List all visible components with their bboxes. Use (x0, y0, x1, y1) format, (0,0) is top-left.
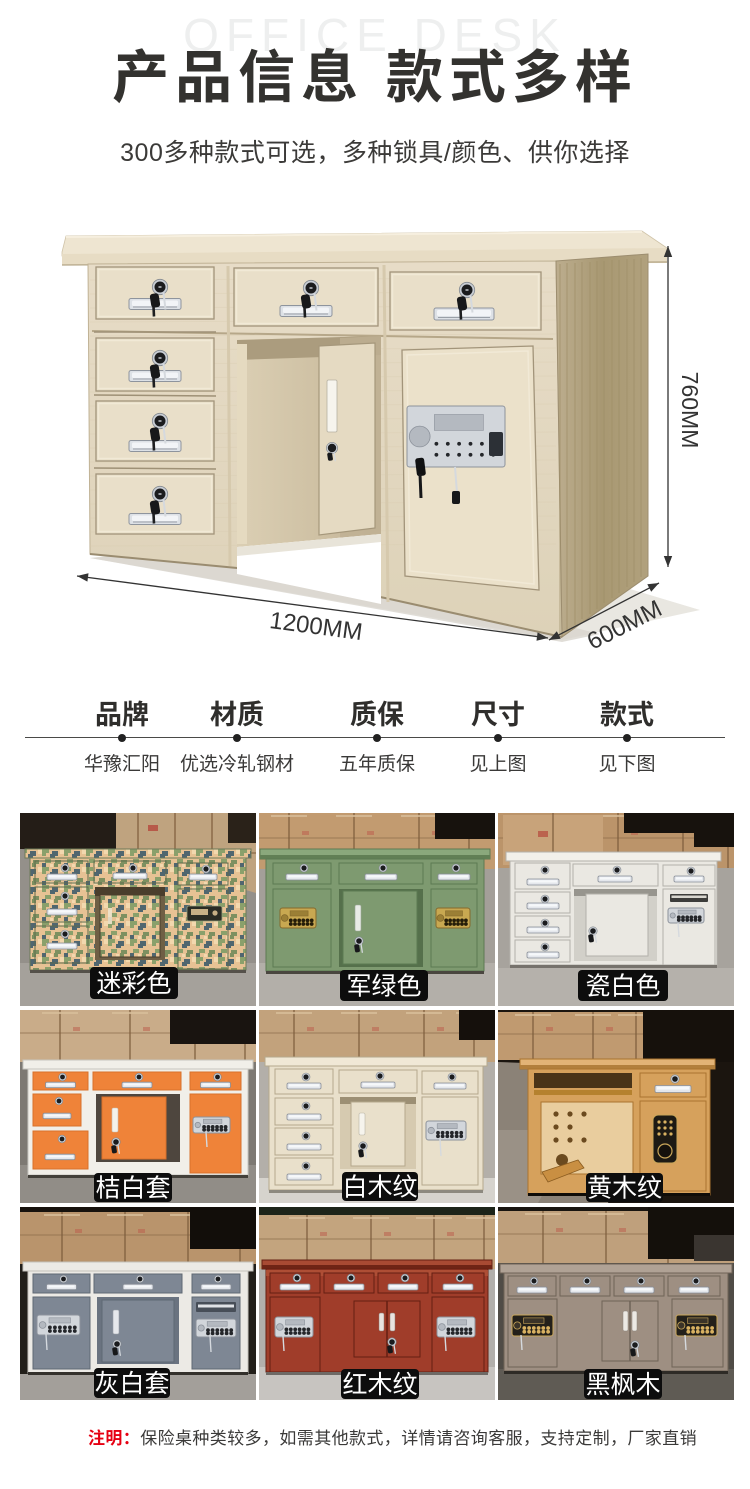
svg-text:黄木纹: 黄木纹 (587, 1175, 662, 1203)
svg-text:白木纹: 白木纹 (342, 1174, 417, 1202)
svg-text:760MM: 760MM (677, 372, 703, 449)
svg-text:灰白套: 灰白套 (94, 1370, 169, 1398)
svg-text:黑枫木: 黑枫木 (585, 1371, 660, 1399)
svg-text:军绿色: 军绿色 (346, 973, 421, 1001)
svg-text:1200MM: 1200MM (268, 607, 364, 646)
svg-text:瓷白色: 瓷白色 (585, 973, 660, 1001)
svg-text:桔白套: 桔白套 (95, 1175, 170, 1203)
svg-text:迷彩色: 迷彩色 (96, 970, 171, 998)
svg-text:红木纹: 红木纹 (342, 1371, 417, 1399)
